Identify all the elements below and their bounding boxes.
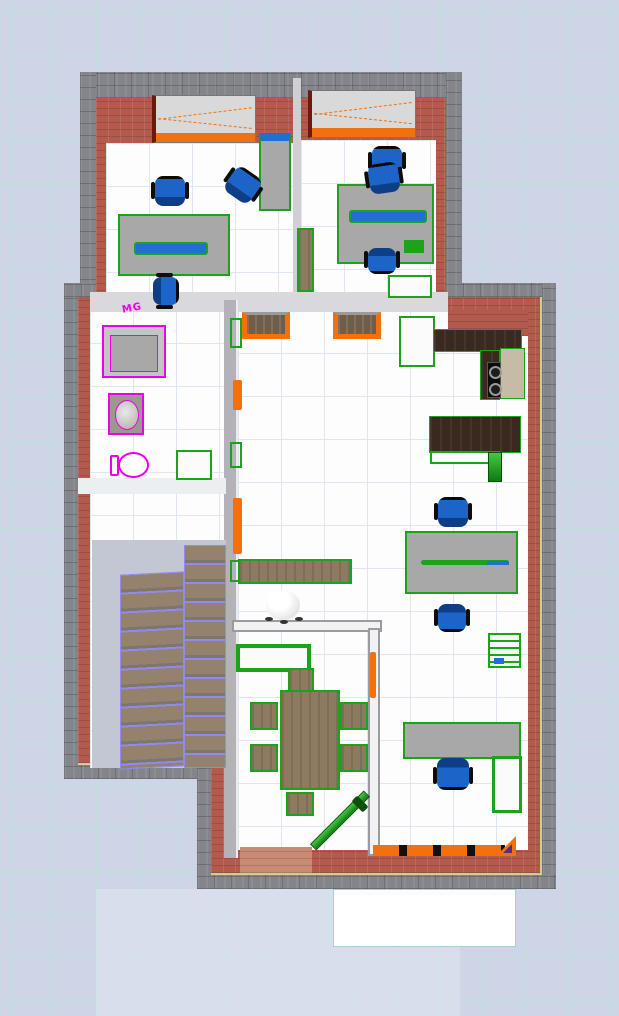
basin-bowl [115, 400, 139, 430]
outer-wall-right [542, 283, 556, 889]
office-chair-6[interactable] [368, 248, 396, 274]
cabinet-office-left[interactable] [259, 133, 291, 211]
serving-hatch-1[interactable] [242, 312, 290, 339]
desk-keyboard [134, 242, 208, 255]
window-office-right[interactable] [308, 90, 416, 138]
sphere-lamp[interactable] [266, 590, 300, 620]
dining-table[interactable] [280, 690, 340, 790]
bottom-wall-light-brick [240, 847, 312, 873]
outer-wall-right-upper [446, 72, 462, 297]
outer-wall-left-upper [80, 72, 96, 292]
stair-flight-right[interactable] [184, 545, 226, 768]
shower-tray [110, 335, 158, 372]
toilet-bowl [118, 452, 149, 478]
wall-meeting-top [232, 620, 382, 632]
fridge[interactable] [399, 316, 435, 367]
office-chair-8[interactable] [438, 604, 466, 632]
burner-2 [489, 383, 502, 396]
office-chair-7[interactable] [438, 497, 468, 527]
dining-chair-left-1[interactable] [250, 702, 278, 730]
printer-tray [494, 658, 504, 664]
stair-flight-left[interactable] [120, 571, 184, 769]
shower-cabin[interactable] [102, 325, 166, 378]
office-chair-9[interactable] [437, 758, 469, 790]
desk-office-left[interactable] [118, 214, 230, 276]
window-bottom-wall[interactable] [373, 845, 505, 856]
patio [333, 889, 516, 947]
wall-bath-stairs-divider [78, 478, 226, 494]
outer-wall-left-lower [64, 283, 78, 779]
outer-wall-bottom [197, 875, 556, 889]
dining-chair-right-2[interactable] [340, 744, 368, 772]
door-leaf-main-1[interactable] [233, 380, 242, 410]
office-chair-3[interactable] [153, 277, 179, 305]
desk-open-area[interactable] [405, 531, 518, 594]
dining-chair-left-2[interactable] [250, 744, 278, 772]
kitchen-counter-lower[interactable] [429, 416, 521, 453]
printer[interactable] [488, 633, 521, 668]
desk-corner-return[interactable] [492, 756, 522, 813]
dining-chair-bottom[interactable] [286, 792, 314, 816]
outer-wall-wing-top [446, 283, 556, 297]
door-leaf-main-2[interactable] [233, 498, 242, 554]
box-under-desk-right[interactable] [388, 275, 432, 298]
window-sill [312, 128, 415, 137]
door-leaf-meeting[interactable] [370, 652, 376, 698]
bathroom-storage-box[interactable] [176, 450, 212, 480]
cooktop[interactable] [487, 362, 501, 398]
burner-1 [489, 366, 502, 379]
wall-bench[interactable] [238, 559, 352, 584]
office-chair-1[interactable] [155, 176, 185, 206]
outer-wall-step-vertical [197, 765, 211, 889]
dining-chair-right-1[interactable] [340, 702, 368, 730]
desk-corner[interactable] [403, 722, 521, 759]
serving-hatch-2[interactable] [333, 312, 381, 339]
cabinet-wood-divider[interactable] [297, 228, 314, 292]
desk-cable-blue [487, 561, 509, 565]
corner-door-marker-inner [503, 844, 512, 853]
washbasin[interactable] [108, 393, 144, 435]
door-jamb-marker-1 [230, 318, 242, 348]
toilet[interactable] [110, 452, 150, 479]
door-jamb-marker-2 [230, 442, 242, 468]
kitchen-counter-beige[interactable] [500, 348, 525, 399]
floorplan-3d-viewport[interactable]: MG [0, 0, 619, 1016]
label-plate-desk-right [404, 240, 424, 253]
desk-keyboard [349, 210, 427, 223]
office-chair-5[interactable] [367, 161, 401, 195]
kitchen-green-unit[interactable] [488, 452, 502, 482]
dining-chair-top[interactable] [288, 668, 314, 692]
window-sill [156, 133, 255, 142]
window-office-left[interactable] [152, 95, 256, 143]
